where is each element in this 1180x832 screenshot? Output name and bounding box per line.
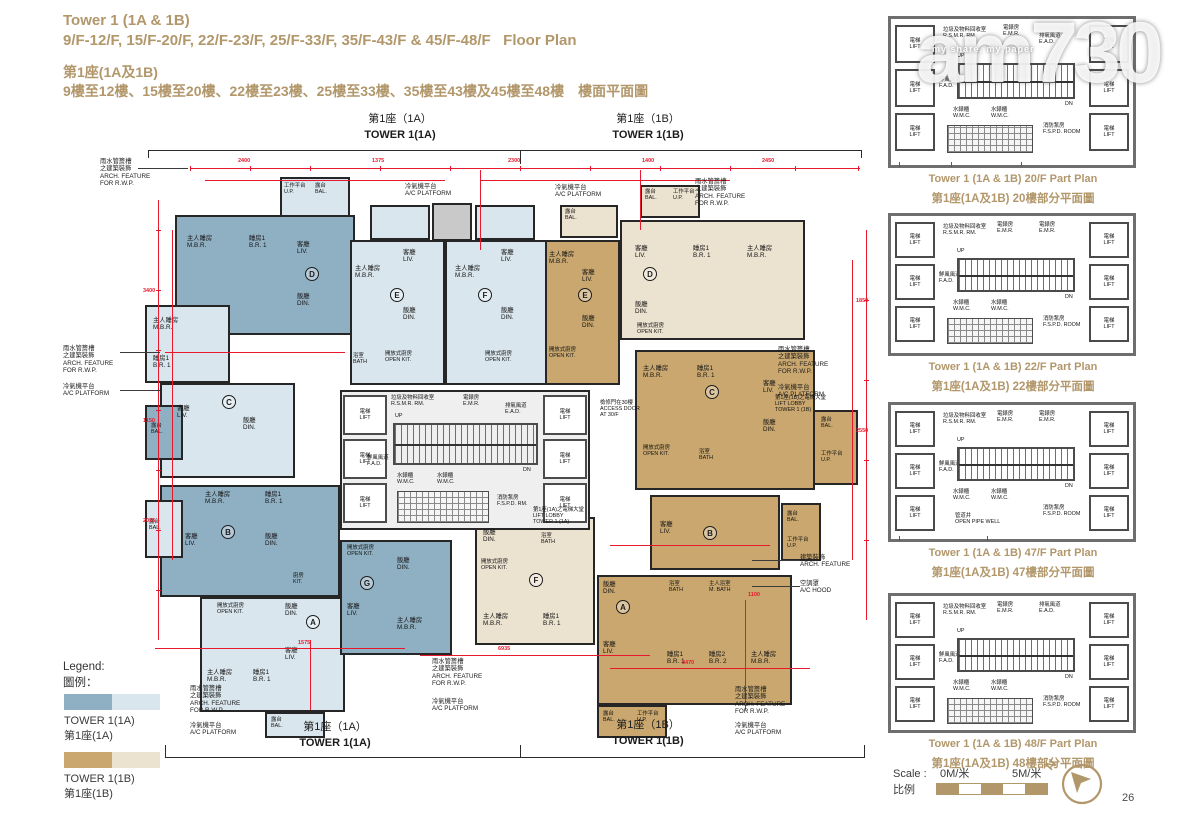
room-label-din: 飯廳DIN.	[763, 419, 776, 433]
unit-circle-a: A	[306, 615, 320, 629]
dimension-tick	[864, 380, 869, 381]
room-label-bath: 浴室BATH	[669, 581, 683, 593]
unit-circle-b: B	[221, 525, 235, 539]
staircase	[957, 258, 1075, 292]
dimension-number: 2450	[762, 158, 774, 164]
room-label-br1: 睡房1B.R. 1	[249, 235, 267, 249]
dimension-line	[190, 168, 860, 169]
dimension-tick	[156, 410, 161, 411]
legend-swatch-1a-dark	[64, 694, 112, 710]
lift-cell: 電梯LIFT	[1089, 411, 1129, 447]
leader-line	[752, 560, 800, 561]
room-label-bal: 露台BAL.	[787, 511, 799, 523]
unit-circle-d: D	[305, 267, 319, 281]
dimension-number: 2300	[508, 158, 520, 164]
part-plan-47f: 電梯LIFT 電梯LIFT 電梯LIFT 電梯LIFT 電梯LIFT 電梯LIF…	[888, 402, 1136, 542]
room-label-liv: 客廳LIV.	[185, 533, 198, 547]
dimension-tick	[450, 166, 451, 171]
lift-cell: 電梯LIFT	[1089, 306, 1129, 342]
lift-cell: 電梯LIFT	[895, 686, 935, 722]
stair-dn-label: DN	[1065, 294, 1073, 300]
dimension-line	[852, 260, 853, 560]
lift-cell: 電梯LIFT	[895, 644, 935, 680]
lobby-hatch	[397, 491, 489, 523]
room-label-wmc: 水錶櫃W.M.C.	[991, 489, 1009, 501]
room-label-din: 飯廳DIN.	[265, 533, 278, 547]
dimension-line	[610, 668, 810, 669]
room-label-br1: 睡房1B.R. 1	[697, 365, 715, 379]
room-label-bal: 露台BAL.	[645, 189, 657, 201]
room-label-okit: 開放式廚房OPEN KIT.	[481, 559, 508, 571]
leader-line	[752, 586, 800, 587]
dimension-line	[480, 170, 481, 250]
tower-1b-top-label-en: TOWER 1(1B)	[578, 128, 718, 144]
lift-cell: 電梯LIFT	[543, 439, 587, 479]
part-plan-47f-caption-en: Tower 1 (1A & 1B) 47/F Part Plan	[888, 547, 1138, 559]
tower-1b-top-label-zh: 第1座（1B）	[578, 112, 718, 128]
room-label-up: 工作平台U.P.	[284, 183, 306, 195]
part-plan-47f-caption-zh: 第1座(1A及1B) 47樓部分平面圖	[888, 564, 1138, 580]
part-plan-22f: 電梯LIFT 電梯LIFT 電梯LIFT 電梯LIFT 電梯LIFT 電梯LIF…	[888, 213, 1136, 356]
scale-label-en: Scale :	[893, 767, 927, 781]
dimension-tick	[864, 540, 869, 541]
room-label-rsmr: 垃圾及物料回收室R.S.M.R. RM.	[391, 395, 434, 407]
lift-cell: 電梯LIFT	[1089, 602, 1129, 638]
scale-bar-segment	[1003, 784, 1025, 794]
scale-bar	[936, 783, 1048, 795]
dimension-line	[158, 200, 159, 640]
tower-1a-top-label: 第1座（1A） TOWER 1(1A)	[330, 112, 470, 144]
room-label-mbr: 主人睡房M.B.R.	[643, 365, 668, 379]
lift-cell: 電梯LIFT	[895, 113, 935, 151]
dimension-number: 1850	[856, 298, 868, 304]
unit-circle-b-1b: B	[703, 526, 717, 540]
callout-arch-feature-rwp: 雨水管簷槽之建築裝飾 ARCH. FEATUREFOR R.W.P.	[735, 686, 785, 716]
callout-arch-feature: 建築裝飾ARCH. FEATURE	[800, 554, 850, 569]
room-label-din: 飯廳DIN.	[483, 529, 496, 543]
legend-item-1a-label: TOWER 1(1A) 第1座(1A)	[64, 714, 135, 744]
room-label-bath: 浴室BATH	[541, 533, 555, 545]
lobby-hatch	[947, 318, 1033, 344]
legend-swatch-1b-dark	[64, 752, 112, 768]
bottom-bracket-tick	[165, 745, 166, 757]
scale-start-label: 0M/米	[940, 767, 969, 781]
room-label-din: 飯廳DIN.	[635, 301, 648, 315]
top-bracket-line	[148, 150, 862, 151]
lift-cell: 電梯LIFT	[543, 395, 587, 435]
room-label-mbr: 主人睡房M.B.R.	[549, 251, 574, 265]
dimension-tick	[156, 470, 161, 471]
dimension-tick	[1021, 162, 1022, 167]
room-label-emr: 電錶房E.M.R.	[1039, 222, 1055, 234]
lobby-hatch	[947, 698, 1033, 724]
callout-lift-lobby-1a: 第1座(1A)之電梯大堂LIFT LOBBYTOWER 1 (1A)	[533, 507, 584, 526]
staircase	[957, 447, 1075, 481]
leader-line	[120, 390, 160, 391]
callout-arch-feature-rwp: 雨水管簷槽之建築裝飾 ARCH. FEATUREFOR R.W.P.	[432, 658, 482, 688]
dimension-tick	[660, 166, 661, 171]
tower-1b-bottom-label: 第1座（1B） TOWER 1(1B)	[578, 718, 718, 750]
tower-1a-bottom-label-zh: 第1座（1A）	[265, 720, 405, 736]
lift-cell: 電梯LIFT	[1089, 222, 1129, 258]
room-label-din: 飯廳DIN.	[397, 557, 410, 571]
part-plan-22f-caption-zh: 第1座(1A及1B) 22樓部分平面圖	[888, 378, 1138, 394]
lift-cell: 電梯LIFT	[895, 306, 935, 342]
dimension-tick	[156, 590, 161, 591]
legend-swatch-1a	[64, 694, 160, 710]
room-label-fad: 鮮風風道F.A.D.	[367, 455, 389, 467]
dimension-tick	[590, 166, 591, 171]
lift-cell: 電梯LIFT	[343, 483, 387, 523]
lift-cell: 電梯LIFT	[895, 222, 935, 258]
dimension-tick	[156, 350, 161, 351]
scale-bar-segment	[937, 784, 959, 794]
room-label-wmc: 水錶櫃W.M.C.	[397, 473, 415, 485]
stair-dn-label: DN	[1065, 674, 1073, 680]
room-label-liv: 客廳LIV.	[763, 380, 776, 394]
bottom-bracket-tick	[864, 745, 865, 757]
dimension-tick	[730, 166, 731, 171]
room-label-bal: 露台BAL.	[151, 423, 163, 435]
room-label-br2: 睡房2B.R. 2	[709, 651, 727, 665]
unit-circle-d-1b: D	[643, 267, 657, 281]
dimension-tick	[156, 230, 161, 231]
lift-cell: 電梯LIFT	[1089, 686, 1129, 722]
scale-label-zh: 比例	[893, 783, 915, 797]
room-label-wmc: 水錶櫃W.M.C.	[991, 680, 1009, 692]
dimension-line	[310, 640, 311, 710]
room-label-br1: 睡房1B.R. 1	[253, 669, 271, 683]
stair-dn-label: DN	[1065, 101, 1073, 107]
room-label-bal: 露台BAL.	[821, 417, 833, 429]
dimension-number: 2025	[143, 518, 155, 524]
room-label-wmc: 水錶櫃W.M.C.	[953, 300, 971, 312]
room-label-mbr: 主人睡房M.B.R.	[187, 235, 212, 249]
room-label-din: 飯廳DIN.	[243, 417, 256, 431]
scale-end-label: 5M/米	[1012, 767, 1041, 781]
dimension-tick	[380, 166, 381, 171]
part-plan-20f-caption-en: Tower 1 (1A & 1B) 20/F Part Plan	[888, 173, 1138, 185]
dimension-number: 1575	[298, 640, 310, 646]
leader-line	[138, 168, 188, 169]
leader-line	[120, 352, 160, 353]
unit-circle-e-1b: E	[578, 288, 592, 302]
room-label-emr: 電錶房E.M.R.	[463, 395, 479, 407]
room-label-okit: 開放式廚房OPEN KIT.	[643, 445, 670, 457]
lift-cell: 電梯LIFT	[343, 395, 387, 435]
room-label-rsmr: 垃圾及物料回收室R.S.M.R. RM.	[943, 413, 986, 425]
dimension-tick	[951, 162, 952, 167]
room-label-emr: 電錶房E.M.R.	[997, 602, 1013, 614]
callout-ac-platform: 冷氣機平台A/C PLATFORM	[555, 184, 601, 199]
tower-1a-top-label-zh: 第1座（1A）	[330, 112, 470, 128]
dimension-tick	[795, 166, 796, 171]
tower-1a-bottom-label: 第1座（1A） TOWER 1(1A)	[265, 720, 405, 752]
page-title-zh: 第1座(1A及1B)	[63, 62, 158, 82]
room-label-fspd: 消防泵房F.S.P.D. ROOM	[1043, 696, 1080, 708]
room-label-bal: 露台BAL.	[565, 209, 577, 221]
part-plan-48f: 電梯LIFT 電梯LIFT 電梯LIFT 電梯LIFT 電梯LIFT 電梯LIF…	[888, 593, 1136, 733]
room-label-br1: 睡房1B.R. 1	[693, 245, 711, 259]
lift-cell: 電梯LIFT	[1089, 264, 1129, 300]
dimension-tick	[156, 290, 161, 291]
room-label-liv: 客廳LIV.	[635, 245, 648, 259]
staircase	[393, 423, 538, 465]
legend-title-en: Legend:	[63, 660, 105, 676]
room-label-up: 工作平台U.P.	[787, 537, 809, 549]
wall-block	[432, 203, 472, 241]
room-label-din: 飯廳DIN.	[603, 581, 616, 595]
dimension-tick	[858, 166, 859, 171]
room-label-mbr: 主人睡房M.B.R.	[153, 317, 178, 331]
dimension-line	[420, 655, 650, 656]
room-label-up: 工作平台U.P.	[673, 189, 695, 201]
bottom-bracket-tick	[520, 745, 521, 757]
dimension-tick	[156, 530, 161, 531]
lift-cell: 電梯LIFT	[1089, 644, 1129, 680]
room-label-liv: 客廳LIV.	[582, 269, 595, 283]
stair-dn-label: DN	[1065, 483, 1073, 489]
room-label-liv: 客廳LIV.	[285, 647, 298, 661]
room-label-din: 飯廳DIN.	[501, 307, 514, 321]
room-label-up: 工作平台U.P.	[821, 451, 843, 463]
legend-item-1b-label: TOWER 1(1B) 第1座(1B)	[64, 772, 135, 802]
room-label-mbr: 主人睡房M.B.R.	[355, 265, 380, 279]
dimension-line	[480, 180, 730, 181]
room-label-mbr: 主人睡房M.B.R.	[751, 651, 776, 665]
room-label-fspd: 消防泵房F.S.P.D. ROOM	[1043, 505, 1080, 517]
room-label-emr: 電錶房E.M.R.	[997, 411, 1013, 423]
lift-cell: 電梯LIFT	[1089, 453, 1129, 489]
part-plan-22f-caption-en: Tower 1 (1A & 1B) 22/F Part Plan	[888, 361, 1138, 373]
tower-1a-bottom-label-en: TOWER 1(1A)	[265, 736, 405, 752]
room-label-bal: 露台BAL.	[315, 183, 327, 195]
unit-circle-c-1b: C	[705, 385, 719, 399]
north-compass-icon	[1058, 760, 1104, 806]
floor-plan: 電梯LIFT 電梯LIFT 電梯LIFT 電梯LIFT 電梯LIFT 電梯LIF…	[145, 155, 873, 767]
room-label-wmc: 水錶櫃W.M.C.	[953, 680, 971, 692]
scale-bar-segment	[981, 784, 1003, 794]
part-plan-20f-caption-zh: 第1座(1A及1B) 20樓部分平面圖	[888, 190, 1138, 206]
room-label-bath: 浴室BATH	[699, 449, 713, 461]
room-label-wmc: 水錶櫃W.M.C.	[953, 489, 971, 501]
room-label-fspd: 消防泵房F.S.P.D. ROOM	[1043, 123, 1080, 135]
lift-cell: 電梯LIFT	[895, 453, 935, 489]
lift-cell: 電梯LIFT	[895, 411, 935, 447]
room-label-liv: 客廳LIV.	[347, 603, 360, 617]
dimension-tick	[190, 166, 191, 171]
room-label-open-pipe-well: 管道井OPEN PIPE WELL	[955, 513, 1000, 525]
room-label-liv: 客廳LIV.	[501, 249, 514, 263]
callout-ac-platform: 冷氣機平台A/C PLATFORM	[735, 722, 781, 737]
lift-cell: 電梯LIFT	[895, 602, 935, 638]
lift-cell: 電梯LIFT	[1089, 113, 1129, 151]
room-label-wmc: 水錶櫃W.M.C.	[991, 300, 1009, 312]
room-label-emr: 電錶房E.M.R.	[1039, 411, 1055, 423]
scale-bar-segment	[1025, 784, 1047, 794]
legend-item-1b-label-zh: 第1座(1B)	[64, 787, 135, 802]
room-label-din: 飯廳DIN.	[403, 307, 416, 321]
dimension-line	[172, 230, 173, 560]
tower-1b-bottom-label-zh: 第1座（1B）	[578, 718, 718, 734]
page-subtitle-en: 9/F-12/F, 15/F-20/F, 22/F-23/F, 25/F-33/…	[63, 32, 577, 49]
room-label-okit: 開放式廚房OPEN KIT.	[217, 603, 244, 615]
room-label-br1: 睡房1B.R. 1	[153, 355, 171, 369]
balcony-block	[370, 205, 430, 240]
legend-swatch-1a-light	[112, 694, 160, 710]
callout-arch-feature-rwp: 雨水管簷槽之建築裝飾 ARCH. FEATUREFOR R.W.P.	[778, 346, 828, 376]
callout-arch-feature-rwp: 雨水管簷槽之建築裝飾 ARCH. FEATUREFOR R.W.P.	[63, 345, 113, 375]
dimension-tick	[899, 536, 900, 541]
room-label-mbr: 主人睡房M.B.R.	[397, 617, 422, 631]
room-label-rsmr: 垃圾及物料回收室R.S.M.R. RM.	[943, 224, 986, 236]
page-number: 26	[1122, 792, 1134, 804]
dimension-line	[866, 230, 867, 620]
lobby-hatch	[947, 125, 1033, 153]
legend-item-1a-label-zh: 第1座(1A)	[64, 729, 135, 744]
dimension-tick	[899, 162, 900, 167]
room-label-fspd: 消防泵房F.S.P.D. ROOM	[1043, 316, 1080, 328]
stair-up-label: UP	[395, 413, 403, 419]
page-subtitle-zh: 9樓至12樓、15樓至20樓、22樓至23樓、25樓至33樓、35樓至43樓及4…	[63, 81, 648, 101]
room-label-wmc: 水錶櫃W.M.C.	[953, 107, 971, 119]
room-label-okit: 開放式廚房OPEN KIT.	[347, 545, 374, 557]
room-label-fspd: 消防泵房F.S.P.D. RM.	[497, 495, 527, 507]
callout-arch-feature-rwp: 雨水管簷槽之建築裝飾 ARCH. FEATUREFOR R.W.P.	[100, 158, 150, 188]
callout-ac-platform: 冷氣機平台A/C PLATFORM	[778, 384, 824, 399]
stair-dn-label: DN	[523, 467, 531, 473]
callout-ac-platform: 冷氣機平台A/C PLATFORM	[432, 698, 478, 713]
staircase	[957, 638, 1075, 672]
callout-arch-feature-rwp: 雨水管簷槽之建築裝飾 ARCH. FEATUREFOR R.W.P.	[190, 685, 240, 715]
dimension-line	[155, 648, 405, 649]
dimension-tick	[864, 460, 869, 461]
scale-bar-segment	[959, 784, 981, 794]
dimension-number: 1375	[372, 158, 384, 164]
unit-circle-g: G	[360, 576, 374, 590]
room-label-kit: 廚房KIT.	[293, 573, 304, 585]
legend-item-1b-label-en: TOWER 1(1B)	[64, 772, 135, 787]
callout-access-door: 檢修門在30樓ACCESS DOORAT 30/F	[600, 400, 640, 419]
room-label-ead: 排氣風道E.A.D.	[505, 403, 527, 415]
dimension-number: 1150	[143, 418, 155, 424]
room-label-mbr: 主人睡房M.B.R.	[455, 265, 480, 279]
room-label-okit: 開放式廚房OPEN KIT.	[385, 351, 412, 363]
dimension-line	[165, 352, 345, 353]
room-label-br1: 睡房1B.R. 1	[543, 613, 561, 627]
legend-swatch-1b	[64, 752, 160, 768]
callout-ac-hood: 空調罩A/C HOOD	[800, 580, 831, 595]
dimension-line	[640, 170, 641, 230]
dimension-tick	[520, 166, 521, 171]
dimension-number: 1400	[642, 158, 654, 164]
dimension-tick	[250, 166, 251, 171]
dimension-number: 2400	[238, 158, 250, 164]
room-label-mbath: 主人浴室M. BATH	[709, 581, 731, 593]
room-label-wmc: 水錶櫃W.M.C.	[437, 473, 455, 485]
tower-1a-top-label-en: TOWER 1(1A)	[330, 128, 470, 144]
room-label-din: 飯廳DIN.	[297, 293, 310, 307]
room-label-mbr: 主人睡房M.B.R.	[205, 491, 230, 505]
room-label-mbr: 主人睡房M.B.R.	[207, 669, 232, 683]
tower-1b-bottom-label-en: TOWER 1(1B)	[578, 734, 718, 750]
dimension-tick	[310, 166, 311, 171]
unit-circle-f: F	[478, 288, 492, 302]
room-label-din: 飯廳DIN.	[285, 603, 298, 617]
unit-circle-a-1b: A	[616, 600, 630, 614]
legend-title-zh: 圖例：	[63, 676, 105, 692]
lift-cell: 電梯LIFT	[895, 264, 935, 300]
bottom-bracket-line	[165, 757, 865, 758]
room-label-okit: 開放式廚房OPEN KIT.	[637, 323, 664, 335]
dimension-number: 1100	[748, 592, 760, 598]
stair-up-label: UP	[957, 628, 965, 634]
room-label-din: 飯廳DIN.	[582, 315, 595, 329]
room-label-ead: 排氣風道E.A.D.	[1039, 602, 1061, 614]
tower-1b-top-label: 第1座（1B） TOWER 1(1B)	[578, 112, 718, 144]
dimension-line	[610, 545, 770, 546]
dimension-number: 6935	[498, 646, 510, 652]
legend-swatch-1b-light	[112, 752, 160, 768]
stair-up-label: UP	[957, 437, 965, 443]
room-label-liv: 客廳LIV.	[660, 521, 673, 535]
dimension-tick	[987, 536, 988, 541]
lift-cell: 電梯LIFT	[1089, 495, 1129, 531]
balcony-block	[475, 205, 535, 240]
legend-title: Legend: 圖例：	[63, 660, 105, 691]
room-label-liv: 客廳LIV.	[603, 641, 616, 655]
stair-up-label: UP	[957, 248, 965, 254]
lift-cell: 電梯LIFT	[895, 495, 935, 531]
dimension-number: 2550	[856, 428, 868, 434]
room-label-wmc: 水錶櫃W.M.C.	[991, 107, 1009, 119]
room-label-okit: 開放式廚房OPEN KIT.	[485, 351, 512, 363]
unit-circle-f-1b: F	[529, 573, 543, 587]
room-label-mbr: 主人睡房M.B.R.	[483, 613, 508, 627]
room-label-liv: 客廳LIV.	[403, 249, 416, 263]
callout-ac-platform: 冷氣機平台A/C PLATFORM	[63, 383, 109, 398]
callout-ac-platform: 冷氣機平台A/C PLATFORM	[405, 183, 451, 198]
unit-circle-c: C	[222, 395, 236, 409]
callout-arch-feature-rwp: 雨水管簷槽之建築裝飾 ARCH. FEATUREFOR R.W.P.	[695, 178, 745, 208]
room-label-liv: 客廳LIV.	[297, 241, 310, 255]
dimension-line	[205, 180, 445, 181]
callout-ac-platform: 冷氣機平台A/C PLATFORM	[190, 722, 236, 737]
room-label-okit: 開放式廚房OPEN KIT.	[549, 347, 576, 359]
dimension-number: 3400	[143, 288, 155, 294]
room-label-liv: 客廳LIV.	[177, 405, 190, 419]
dimension-number: 3470	[682, 660, 694, 666]
legend-item-1a-label-en: TOWER 1(1A)	[64, 714, 135, 729]
room-label-br1: 睡房1B.R. 1	[265, 491, 283, 505]
page-title-en: Tower 1 (1A & 1B)	[63, 12, 190, 29]
room-label-bath: 浴室BATH	[353, 353, 367, 365]
room-label-mbr: 主人睡房M.B.R.	[747, 245, 772, 259]
unit-circle-e: E	[390, 288, 404, 302]
room-label-rsmr: 垃圾及物料回收室R.S.M.R. RM.	[943, 604, 986, 616]
room-label-emr: 電錶房E.M.R.	[997, 222, 1013, 234]
watermark-tagline: my share, my paper	[932, 44, 1035, 54]
part-plan-48f-caption-en: Tower 1 (1A & 1B) 48/F Part Plan	[888, 738, 1138, 750]
